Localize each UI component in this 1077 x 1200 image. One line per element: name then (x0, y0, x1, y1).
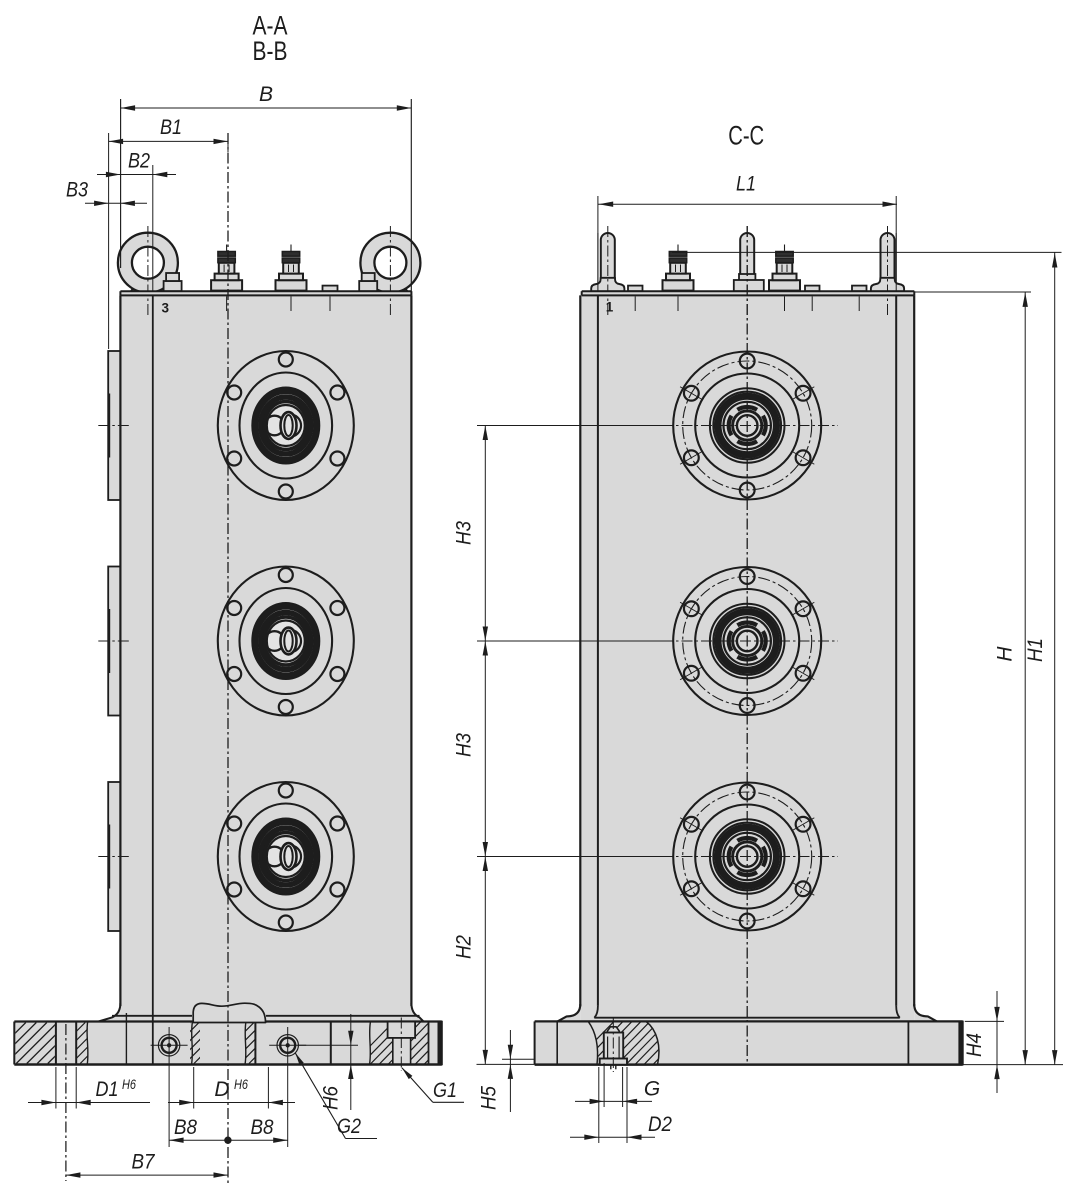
svg-text:B: B (259, 83, 273, 106)
svg-text:H3: H3 (453, 521, 476, 545)
svg-text:B3: B3 (66, 179, 88, 202)
svg-text:B8: B8 (251, 1116, 274, 1139)
svg-text:B8: B8 (174, 1116, 197, 1139)
svg-text:H4: H4 (963, 1033, 986, 1057)
svg-text:B7: B7 (132, 1151, 156, 1174)
svg-text:B1: B1 (160, 116, 182, 139)
svg-text:1: 1 (606, 300, 614, 315)
svg-text:H3: H3 (453, 733, 476, 757)
svg-text:H5: H5 (478, 1086, 501, 1110)
svg-text:D1: D1 (96, 1078, 119, 1101)
svg-text:H6: H6 (234, 1076, 248, 1092)
svg-text:G1: G1 (433, 1079, 457, 1102)
svg-text:H: H (994, 646, 1017, 662)
svg-text:H6: H6 (320, 1086, 343, 1110)
svg-text:3: 3 (162, 301, 170, 316)
svg-text:G: G (644, 1078, 660, 1101)
svg-text:D2: D2 (648, 1113, 672, 1136)
svg-text:G2: G2 (337, 1115, 361, 1138)
svg-text:H2: H2 (453, 935, 476, 959)
svg-text:D: D (214, 1078, 229, 1101)
svg-text:B-B: B-B (253, 36, 288, 66)
svg-text:C-C: C-C (728, 121, 764, 151)
svg-text:H6: H6 (122, 1076, 136, 1092)
svg-text:B2: B2 (128, 150, 150, 173)
svg-text:H1: H1 (1024, 638, 1047, 662)
svg-text:L1: L1 (736, 173, 756, 196)
